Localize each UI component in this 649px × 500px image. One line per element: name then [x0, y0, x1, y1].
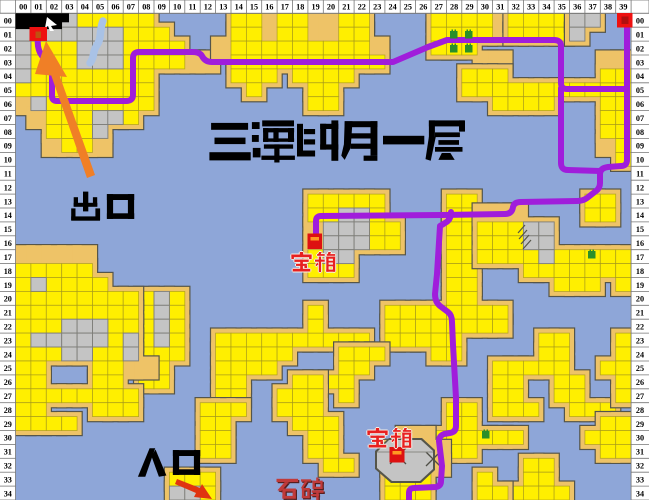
svg-text:00: 00 [636, 17, 644, 26]
svg-text:10: 10 [636, 156, 644, 165]
svg-text:23: 23 [373, 3, 381, 12]
svg-text:17: 17 [4, 253, 12, 262]
svg-text:06: 06 [636, 100, 644, 109]
svg-text:11: 11 [636, 170, 644, 179]
svg-text:18: 18 [296, 3, 304, 12]
svg-text:01: 01 [35, 3, 43, 12]
svg-text:30: 30 [636, 434, 644, 443]
svg-text:23: 23 [4, 336, 12, 345]
svg-text:20: 20 [327, 3, 335, 12]
svg-text:19: 19 [636, 281, 644, 290]
svg-text:17: 17 [636, 253, 644, 262]
svg-text:05: 05 [4, 86, 12, 95]
svg-text:23: 23 [636, 336, 644, 345]
svg-text:06: 06 [4, 100, 12, 109]
svg-text:01: 01 [636, 31, 644, 40]
svg-text:09: 09 [636, 142, 644, 151]
svg-text:22: 22 [4, 323, 12, 332]
svg-text:27: 27 [636, 392, 644, 401]
svg-text:34: 34 [542, 3, 550, 12]
svg-text:13: 13 [4, 197, 12, 206]
svg-text:29: 29 [465, 3, 473, 12]
svg-text:12: 12 [204, 3, 212, 12]
svg-text:00: 00 [4, 17, 12, 26]
svg-text:25: 25 [404, 3, 412, 12]
svg-text:34: 34 [4, 489, 12, 498]
svg-text:34: 34 [636, 489, 644, 498]
svg-text:07: 07 [636, 114, 644, 123]
svg-text:21: 21 [636, 309, 644, 318]
svg-text:31: 31 [496, 3, 504, 12]
svg-text:09: 09 [4, 142, 12, 151]
svg-text:33: 33 [636, 476, 644, 485]
svg-text:12: 12 [4, 183, 12, 192]
svg-text:32: 32 [512, 3, 520, 12]
svg-text:07: 07 [4, 114, 12, 123]
svg-text:21: 21 [342, 3, 350, 12]
svg-text:14: 14 [235, 3, 243, 12]
svg-text:11: 11 [4, 170, 12, 179]
svg-text:26: 26 [636, 378, 644, 387]
svg-text:19: 19 [4, 281, 12, 290]
svg-text:17: 17 [281, 3, 289, 12]
svg-text:29: 29 [636, 420, 644, 429]
svg-text:37: 37 [589, 3, 597, 12]
svg-text:15: 15 [636, 225, 644, 234]
svg-text:20: 20 [4, 295, 12, 304]
svg-text:18: 18 [4, 267, 12, 276]
svg-text:13: 13 [219, 3, 227, 12]
svg-text:30: 30 [481, 3, 489, 12]
svg-text:13: 13 [636, 197, 644, 206]
svg-text:27: 27 [4, 392, 12, 401]
svg-text:12: 12 [636, 183, 644, 192]
svg-text:03: 03 [4, 58, 12, 67]
svg-text:16: 16 [265, 3, 273, 12]
svg-text:00: 00 [19, 3, 27, 12]
svg-text:28: 28 [636, 406, 644, 415]
svg-text:15: 15 [4, 225, 12, 234]
svg-text:05: 05 [96, 3, 104, 12]
svg-text:08: 08 [4, 128, 12, 137]
svg-text:22: 22 [636, 323, 644, 332]
svg-text:06: 06 [111, 3, 119, 12]
svg-text:32: 32 [636, 462, 644, 471]
svg-text:24: 24 [4, 350, 12, 359]
svg-text:08: 08 [142, 3, 150, 12]
svg-text:19: 19 [312, 3, 320, 12]
svg-text:24: 24 [389, 3, 397, 12]
svg-text:36: 36 [573, 3, 581, 12]
svg-text:25: 25 [636, 364, 644, 373]
svg-text:04: 04 [4, 72, 12, 81]
svg-text:31: 31 [636, 448, 644, 457]
svg-text:07: 07 [127, 3, 135, 12]
svg-text:31: 31 [4, 448, 12, 457]
svg-text:14: 14 [636, 211, 644, 220]
svg-text:27: 27 [435, 3, 443, 12]
svg-text:26: 26 [4, 378, 12, 387]
svg-text:15: 15 [250, 3, 258, 12]
svg-text:21: 21 [4, 309, 12, 318]
svg-text:02: 02 [636, 44, 644, 53]
svg-text:30: 30 [4, 434, 12, 443]
svg-text:11: 11 [189, 3, 197, 12]
svg-text:38: 38 [604, 3, 612, 12]
svg-text:29: 29 [4, 420, 12, 429]
svg-text:22: 22 [358, 3, 366, 12]
svg-text:04: 04 [81, 3, 89, 12]
svg-text:24: 24 [636, 350, 644, 359]
svg-text:02: 02 [4, 44, 12, 53]
svg-text:26: 26 [419, 3, 427, 12]
svg-text:25: 25 [4, 364, 12, 373]
svg-text:02: 02 [50, 3, 58, 12]
svg-text:33: 33 [527, 3, 535, 12]
svg-text:39: 39 [619, 3, 627, 12]
svg-text:16: 16 [4, 239, 12, 248]
svg-text:28: 28 [4, 406, 12, 415]
svg-text:32: 32 [4, 462, 12, 471]
svg-text:03: 03 [65, 3, 73, 12]
svg-text:08: 08 [636, 128, 644, 137]
svg-text:05: 05 [636, 86, 644, 95]
svg-text:03: 03 [636, 58, 644, 67]
svg-text:01: 01 [4, 31, 12, 40]
svg-text:10: 10 [173, 3, 181, 12]
svg-text:33: 33 [4, 476, 12, 485]
svg-text:04: 04 [636, 72, 644, 81]
svg-text:18: 18 [636, 267, 644, 276]
svg-text:20: 20 [636, 295, 644, 304]
svg-text:35: 35 [558, 3, 566, 12]
svg-text:16: 16 [636, 239, 644, 248]
svg-text:14: 14 [4, 211, 12, 220]
svg-text:10: 10 [4, 156, 12, 165]
svg-text:28: 28 [450, 3, 458, 12]
svg-text:09: 09 [158, 3, 166, 12]
